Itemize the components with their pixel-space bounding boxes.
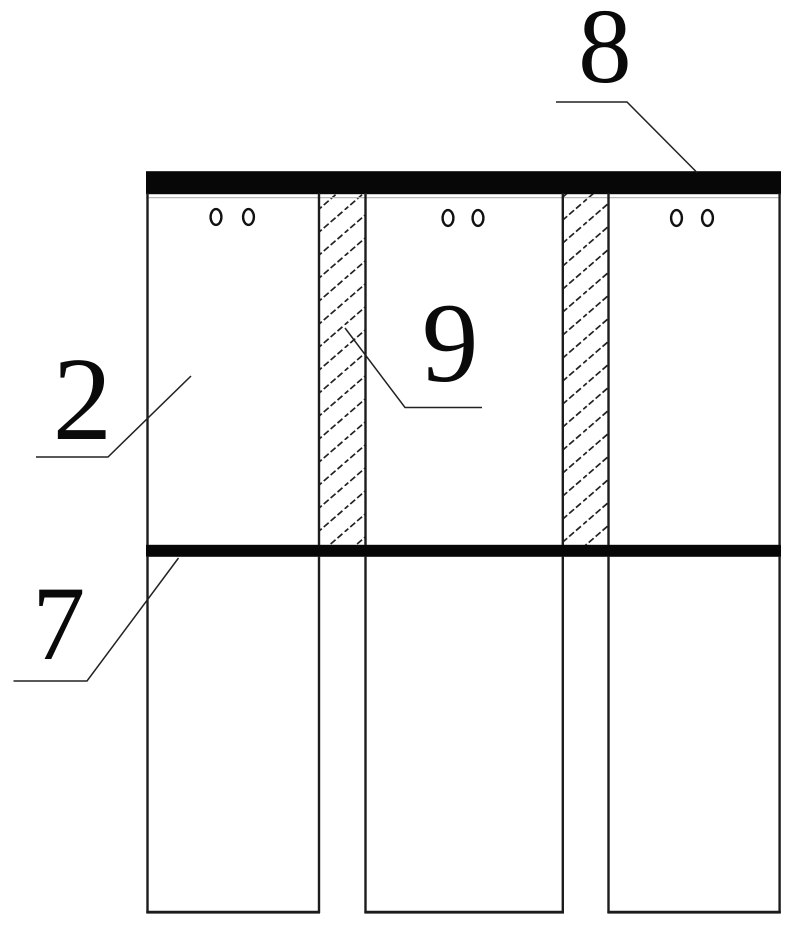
svg-text:7: 7 — [32, 565, 85, 682]
svg-text:8: 8 — [578, 0, 632, 106]
svg-text:2: 2 — [53, 333, 113, 465]
svg-text:9: 9 — [422, 281, 479, 406]
